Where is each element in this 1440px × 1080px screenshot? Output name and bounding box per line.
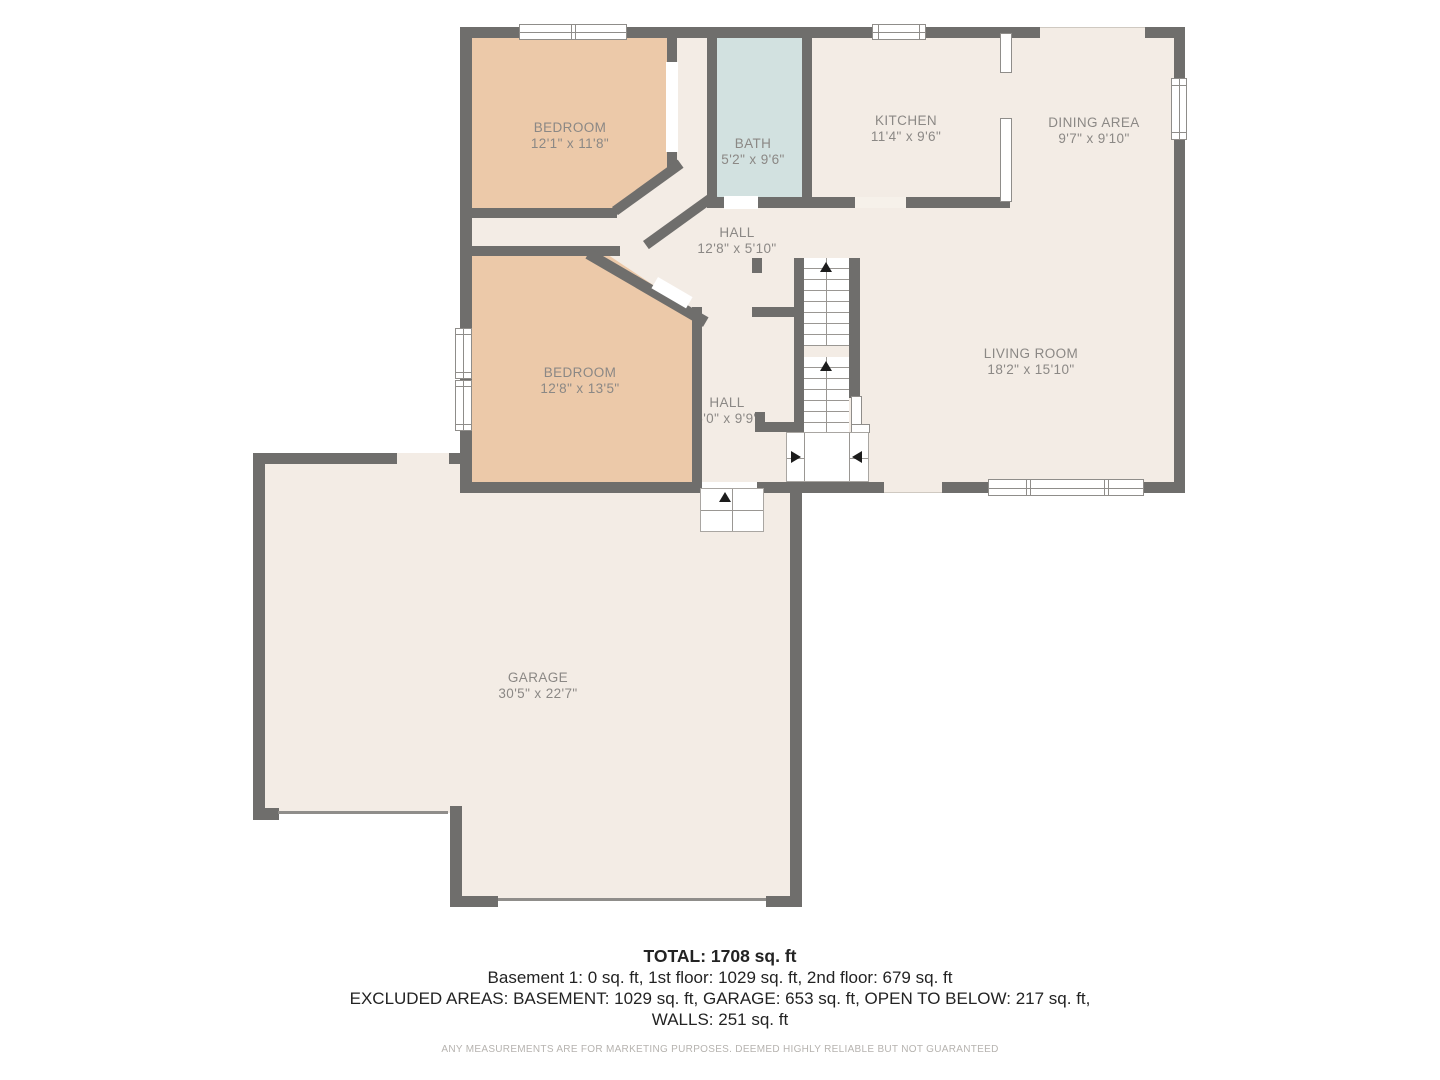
garage-door-line-left [278,811,448,814]
wall-garage-top [253,453,397,464]
garage-door-line-bottom [498,898,766,901]
summary-floors: Basement 1: 0 sq. ft, 1st floor: 1029 sq… [0,968,1440,988]
window-kitchen-top [872,24,926,40]
room-label-kitchen: KITCHEN 11'4" x 9'6" [826,113,986,144]
room-label-garage: GARAGE 30'5" x 22'7" [438,670,638,701]
summary-walls: WALLS: 251 sq. ft [0,1010,1440,1030]
garage-floor-left [265,464,462,813]
wall-garage-bottom-stub-left [450,896,498,907]
wall-garage-left [253,453,265,820]
room-label-bedroom-2: BEDROOM 12'8" x 13'5" [480,365,680,396]
garage-entry-steps [700,488,764,532]
room-name: KITCHEN [826,113,986,129]
garage-steps-up-arrow [719,492,731,502]
kitchen-divider-slab-lower [1000,118,1012,202]
room-label-bedroom-1: BEDROOM 12'1" x 11'8" [470,120,670,151]
room-name: BEDROOM [470,120,670,136]
stair-up-arrow-upper [820,262,832,272]
wall-bedroom2-right [692,307,702,482]
door-gap-kitchen [855,197,906,208]
door-gap-bath [724,196,758,209]
opening-dining-top [1040,27,1145,38]
room-name: GARAGE [438,670,638,686]
door-gap-garage-top [397,453,449,464]
wall-closet-top [752,307,794,317]
room-dims: 9'7" x 9'10" [1014,131,1174,147]
room-dims: 5'2" x 9'6" [703,152,803,168]
summary-disclaimer: ANY MEASUREMENTS ARE FOR MARKETING PURPO… [0,1044,1440,1055]
room-label-bath: BATH 5'2" x 9'6" [703,136,803,167]
wall-stair-right [849,258,860,398]
stair-landing-mid [804,346,849,357]
room-label-living-room: LIVING ROOM 18'2" x 15'10" [931,346,1131,377]
room-dims: 11'4" x 9'6" [826,129,986,145]
room-name: HALL [647,395,807,411]
wall-bath-bottom-left [707,197,724,208]
landing-arrow-left [852,451,862,463]
wall-kitchen-left [802,38,812,208]
wall-kitchen-bottom [906,197,1010,208]
wall-hall-stub [752,258,762,273]
wall-hall-l-vertical [755,412,765,432]
wall-garage-corner-bl [253,808,279,820]
room-name: LIVING ROOM [931,346,1131,362]
opening-living-bottom [884,482,942,493]
kitchen-divider-slab-upper [1000,33,1012,73]
room-dims: 12'1" x 11'8" [470,136,670,152]
window-bedroom2-left-lower [455,380,472,431]
room-dims: 18'2" x 15'10" [931,362,1131,378]
wall-stair-left [794,258,804,432]
room-name: DINING AREA [1014,115,1174,131]
room-name: BATH [703,136,803,152]
window-bedroom1-top [519,24,627,40]
wall-garage-step [450,806,462,907]
summary-total: TOTAL: 1708 sq. ft [0,946,1440,967]
wall-garage-right [790,493,802,907]
room-dims: 12'8" x 5'10" [657,241,817,257]
wall-bedroom1-bottom [460,208,617,218]
wall-garage-top-stub [449,453,472,464]
room-name: HALL [657,225,817,241]
stair-up-arrow-lower [820,361,832,371]
window-bedroom2-left-upper [455,328,472,379]
room-label-hall-upper: HALL 12'8" x 5'10" [657,225,817,256]
wall-bath-left [707,38,717,200]
room-name: BEDROOM [480,365,680,381]
bath-area [717,38,802,199]
room-label-dining-area: DINING AREA 9'7" x 9'10" [1014,115,1174,146]
summary-excluded: EXCLUDED AREAS: BASEMENT: 1029 sq. ft, G… [0,989,1440,1009]
floor-plan: HALL 5'0" x 9'9" [0,0,1440,1080]
room-dims: 30'5" x 22'7" [438,686,638,702]
landing-arrow-right [791,451,801,463]
window-living-bottom-band [988,479,1144,496]
wall-bedroom1-right-upper [667,38,677,64]
room-dims: 12'8" x 13'5" [480,381,680,397]
